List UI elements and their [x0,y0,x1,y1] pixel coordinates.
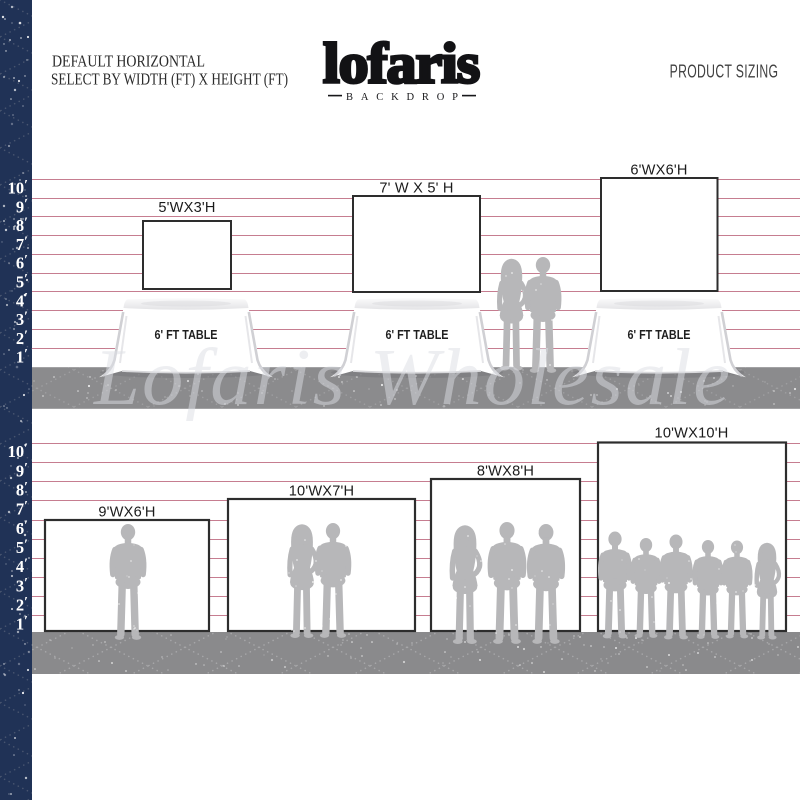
svg-text:9'WX6'H: 9'WX6'H [98,505,155,521]
svg-text:PRODUCT SIZING: PRODUCT SIZING [670,62,779,82]
svg-text:7' W X 5' H: 7' W X 5' H [379,181,453,197]
svg-text:8'WX8'H: 8'WX8'H [477,464,534,480]
svg-text:DEFAULT HORIZONTAL: DEFAULT HORIZONTAL [52,52,205,71]
svg-text:10'WX7'H: 10'WX7'H [289,484,355,500]
svg-text:5'WX3'H: 5'WX3'H [158,200,215,216]
svg-text:10'WX10'H: 10'WX10'H [655,426,729,442]
svg-text:Lofaris Wholesale: Lofaris Wholesale [93,334,732,422]
svg-text:6'WX6'H: 6'WX6'H [630,163,687,179]
svg-text:lofaris: lofaris [323,33,479,96]
svg-text:SELECT BY WIDTH (FT) X HEIGHT: SELECT BY WIDTH (FT) X HEIGHT (FT) [51,70,288,89]
